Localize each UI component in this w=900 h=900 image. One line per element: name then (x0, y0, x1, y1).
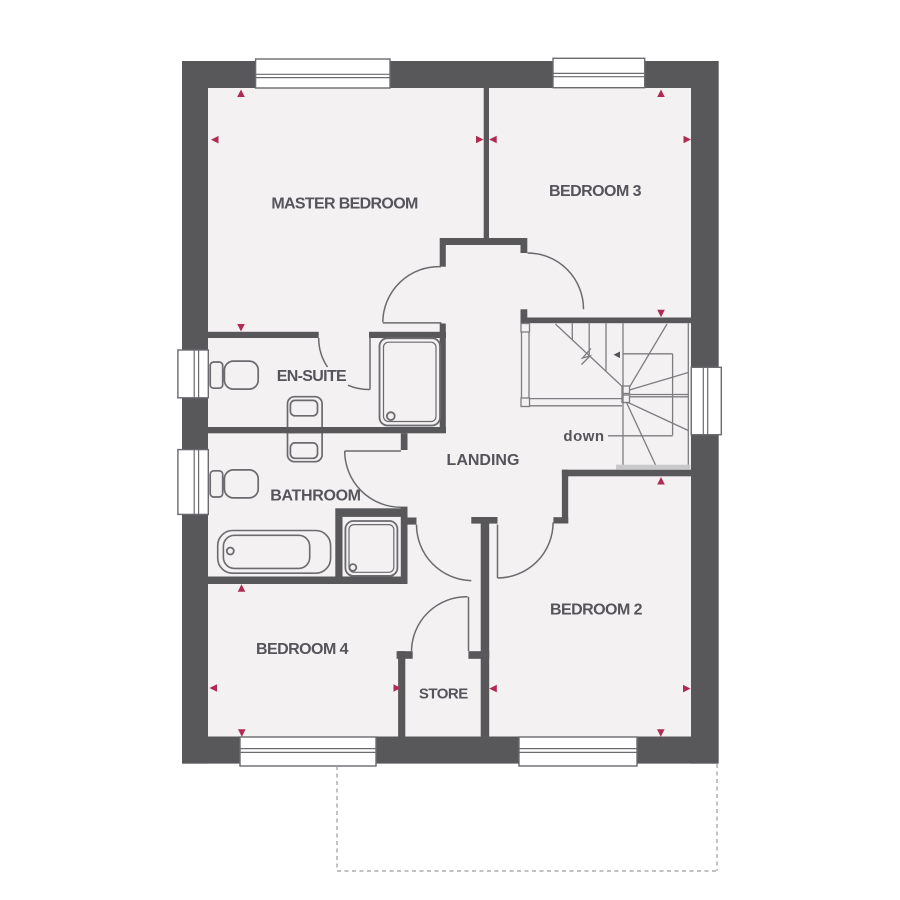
svg-text:BEDROOM 3: BEDROOM 3 (549, 183, 642, 200)
svg-text:BEDROOM 4: BEDROOM 4 (256, 641, 349, 658)
svg-text:down: down (563, 428, 604, 445)
svg-text:MASTER BEDROOM: MASTER BEDROOM (271, 196, 418, 213)
svg-text:BATHROOM: BATHROOM (270, 488, 360, 505)
svg-text:STORE: STORE (419, 686, 468, 703)
svg-text:BEDROOM 2: BEDROOM 2 (550, 602, 643, 619)
svg-text:EN-SUITE: EN-SUITE (277, 368, 347, 385)
svg-text:LANDING: LANDING (447, 452, 520, 469)
